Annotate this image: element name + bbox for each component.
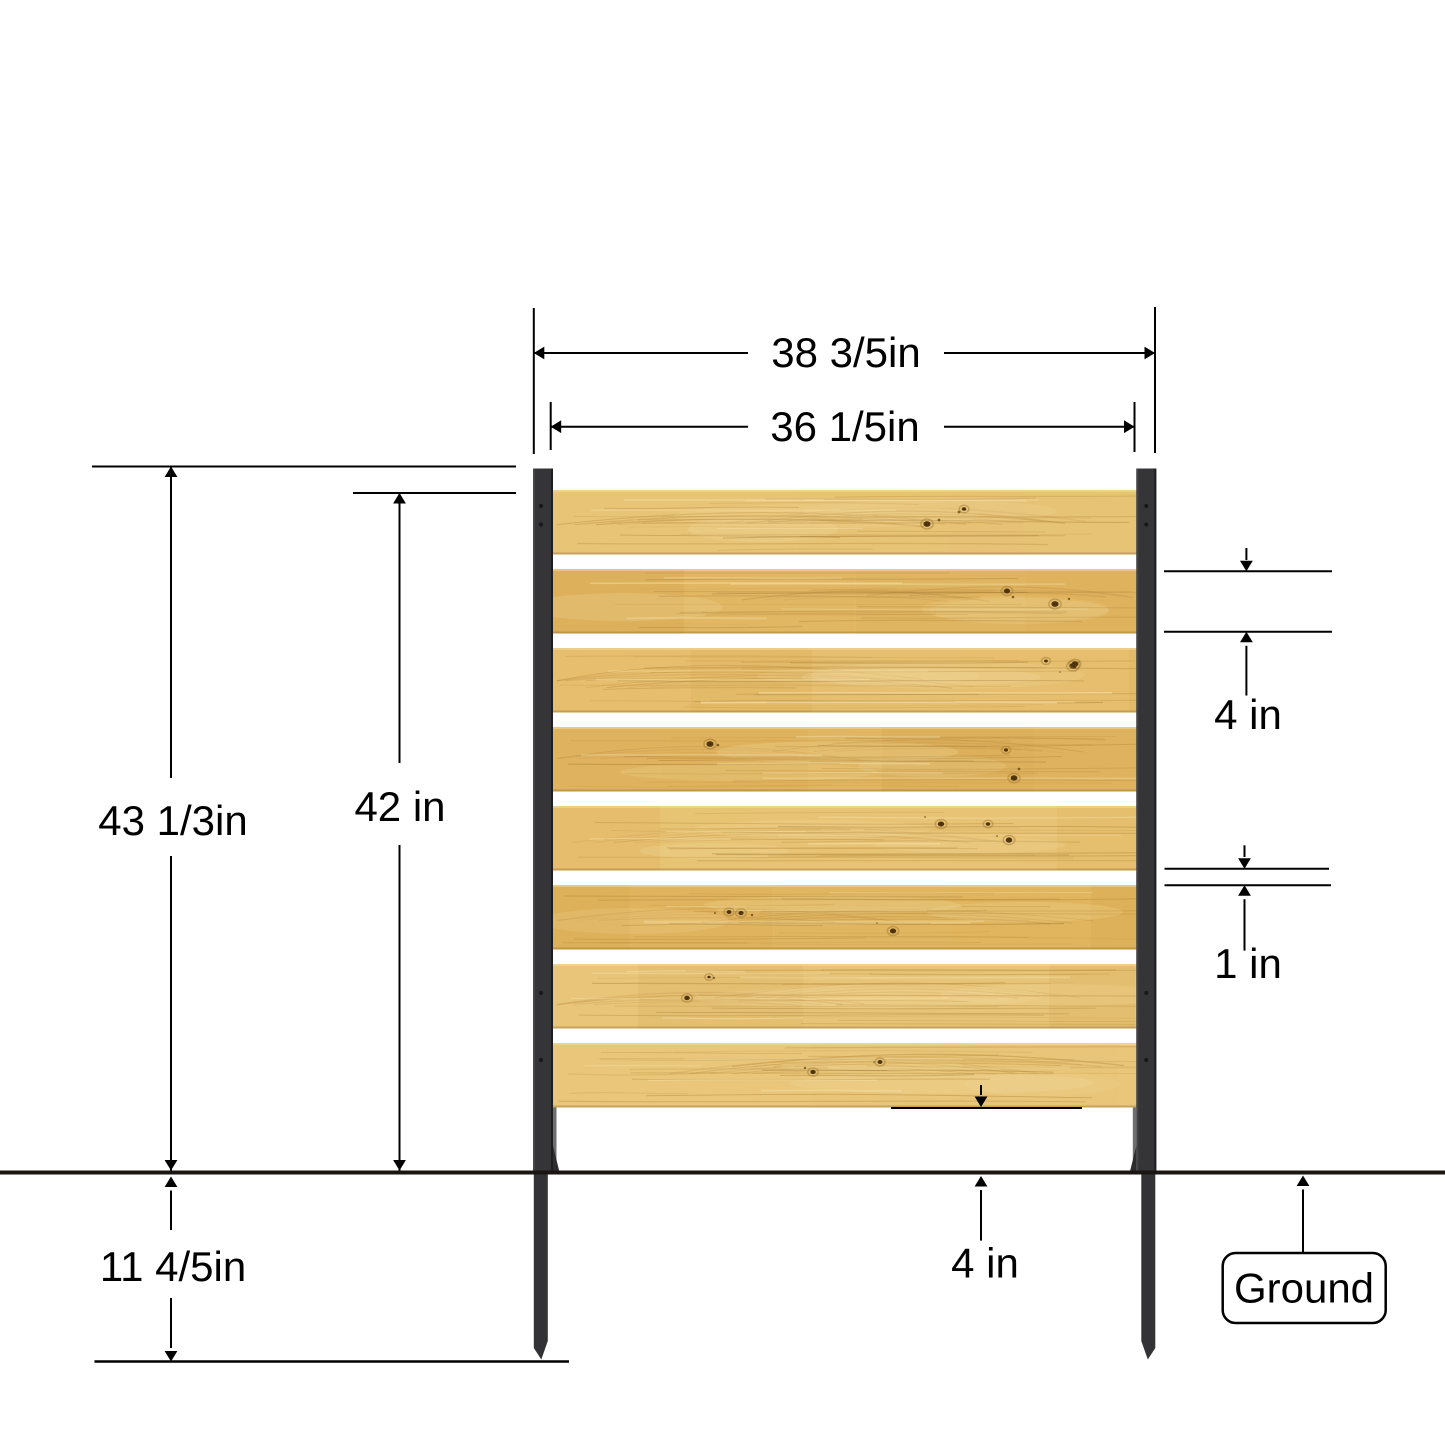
svg-text:36 1/5in: 36 1/5in	[770, 403, 919, 450]
svg-text:38 3/5in: 38 3/5in	[771, 329, 920, 376]
svg-text:1 in: 1 in	[1214, 940, 1282, 987]
svg-text:42 in: 42 in	[354, 783, 445, 830]
svg-text:43 1/3in: 43 1/3in	[98, 797, 247, 844]
svg-text:11 4/5in: 11 4/5in	[100, 1243, 246, 1290]
svg-text:Ground: Ground	[1234, 1265, 1374, 1312]
svg-text:4 in: 4 in	[951, 1240, 1019, 1287]
svg-text:4 in: 4 in	[1214, 691, 1282, 738]
